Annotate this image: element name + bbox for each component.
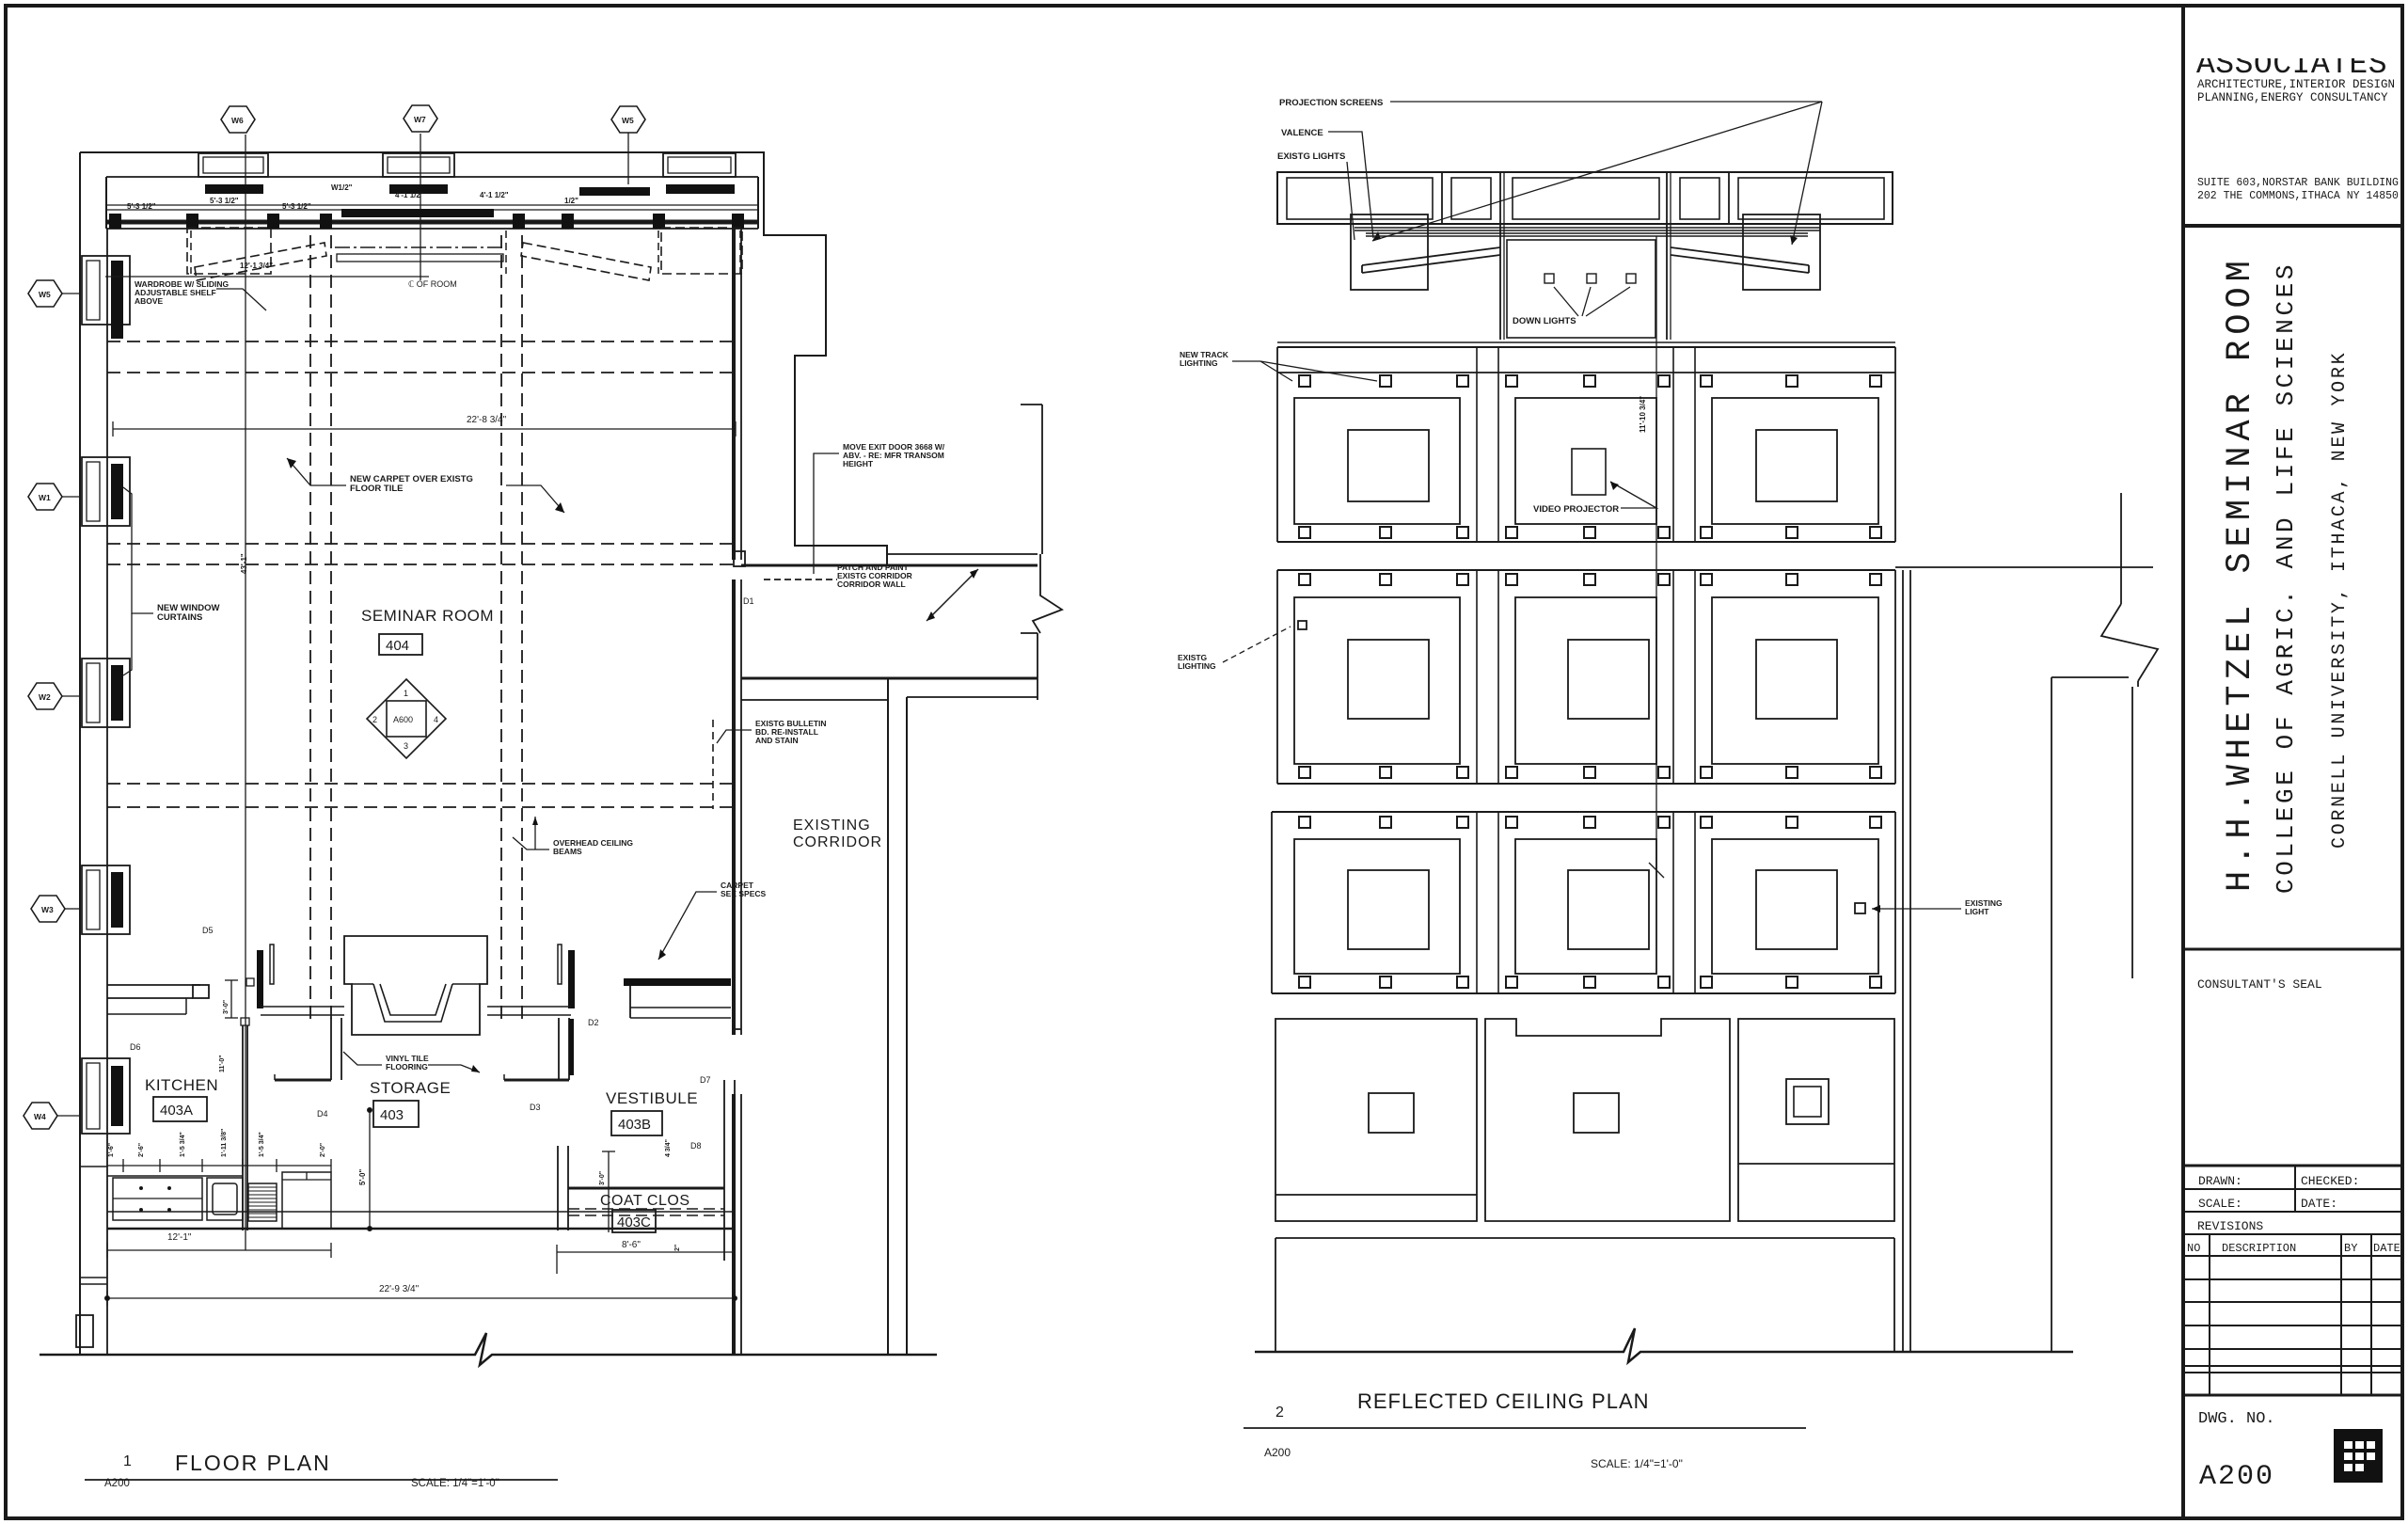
svg-text:VESTIBULE: VESTIBULE [606, 1089, 698, 1107]
svg-text:22'-9 3/4": 22'-9 3/4" [379, 1284, 420, 1294]
svg-text:D3: D3 [530, 1103, 541, 1112]
svg-text:DOWN LIGHTS: DOWN LIGHTS [1513, 316, 1576, 326]
svg-text:1'-5 3/4": 1'-5 3/4" [259, 1132, 265, 1157]
svg-text:CHECKED:: CHECKED: [2301, 1174, 2359, 1188]
svg-text:A200: A200 [2199, 1461, 2274, 1493]
svg-text:DRAWN:: DRAWN: [2198, 1174, 2242, 1188]
svg-text:A200: A200 [104, 1478, 130, 1489]
svg-text:2: 2 [1275, 1405, 1284, 1421]
svg-text:CORRIDOR WALL: CORRIDOR WALL [837, 579, 906, 589]
svg-text:A600: A600 [393, 715, 413, 724]
svg-text:HEIGHT: HEIGHT [843, 459, 874, 468]
svg-text:W5: W5 [39, 290, 51, 299]
svg-text:4: 4 [434, 715, 438, 724]
svg-text:2: 2 [372, 715, 377, 724]
svg-text:CONSULTANT'S SEAL: CONSULTANT'S SEAL [2197, 977, 2322, 992]
svg-text:D7: D7 [700, 1075, 711, 1085]
svg-text:ABOVE: ABOVE [135, 296, 164, 306]
svg-text:11'-0": 11'-0" [219, 1055, 226, 1072]
svg-text:1: 1 [404, 689, 408, 698]
svg-text:BY: BY [2344, 1242, 2357, 1255]
svg-text:5'-3 1/2": 5'-3 1/2" [127, 202, 156, 211]
svg-text:43'-1": 43'-1" [240, 553, 248, 574]
svg-text:1'-11 3/8": 1'-11 3/8" [221, 1129, 228, 1157]
svg-text:12'-1 3/4": 12'-1 3/4" [240, 262, 273, 270]
svg-text:D2: D2 [588, 1018, 599, 1027]
svg-text:AND STAIN: AND STAIN [755, 736, 799, 745]
svg-text:2": 2" [674, 1245, 681, 1251]
svg-text:CURTAINS: CURTAINS [157, 612, 202, 623]
svg-text:202 THE COMMONS,ITHACA NY 1485: 202 THE COMMONS,ITHACA NY 14850 [2197, 190, 2399, 202]
svg-text:DATE: DATE [2373, 1242, 2400, 1255]
svg-text:403B: 403B [618, 1117, 651, 1133]
svg-text:W3: W3 [41, 905, 54, 914]
svg-text:3: 3 [404, 741, 408, 751]
svg-text:LIGHT: LIGHT [1965, 907, 1989, 916]
svg-text:11'-10 3/4": 11'-10 3/4" [1639, 396, 1647, 433]
svg-text:REVISIONS: REVISIONS [2197, 1219, 2263, 1233]
svg-text:3'-0": 3'-0" [599, 1171, 606, 1185]
svg-text:5'-3 1/2": 5'-3 1/2" [282, 202, 311, 211]
svg-text:LIGHTING: LIGHTING [1180, 358, 1218, 368]
svg-text:D8: D8 [690, 1141, 702, 1151]
svg-text:ARCHITECTURE,INTERIOR DESIGN: ARCHITECTURE,INTERIOR DESIGN [2197, 78, 2395, 91]
svg-text:LIGHTING: LIGHTING [1178, 661, 1216, 671]
svg-text:FLOORING: FLOORING [386, 1062, 428, 1072]
svg-text:SCALE: 1/4"=1'-0": SCALE: 1/4"=1'-0" [411, 1478, 499, 1489]
svg-text:CORNELL UNIVERSITY, ITHACA,: CORNELL UNIVERSITY, ITHACA, NEW YORK [2329, 351, 2351, 849]
svg-text:BEAMS: BEAMS [553, 847, 582, 856]
svg-text:4 3/4": 4 3/4" [665, 1139, 672, 1157]
svg-text:PROJECTION SCREENS: PROJECTION SCREENS [1279, 98, 1383, 108]
svg-text:DATE:: DATE: [2301, 1197, 2337, 1211]
svg-text:DESCRIPTION: DESCRIPTION [2222, 1242, 2296, 1255]
svg-text:SUITE 603,NORSTAR BANK BUILDIN: SUITE 603,NORSTAR BANK BUILDING [2197, 177, 2399, 189]
svg-text:5'-3 1/2": 5'-3 1/2" [210, 197, 239, 205]
svg-text:CORRIDOR: CORRIDOR [793, 834, 882, 850]
svg-text:STORAGE: STORAGE [370, 1079, 451, 1097]
svg-text:1'-6": 1'-6" [108, 1143, 115, 1157]
svg-text:FLOOR PLAN: FLOOR PLAN [175, 1451, 331, 1475]
svg-text:1/2": 1/2" [564, 197, 578, 205]
svg-text:D6: D6 [130, 1042, 141, 1052]
svg-text:W2: W2 [39, 692, 51, 702]
svg-text:2'-0": 2'-0" [320, 1143, 326, 1157]
svg-text:SEMINAR ROOM: SEMINAR ROOM [361, 607, 494, 625]
svg-text:SCALE: 1/4"=1'-0": SCALE: 1/4"=1'-0" [1591, 1457, 1683, 1470]
svg-text:W4: W4 [34, 1112, 46, 1121]
svg-text:12'-1": 12'-1" [167, 1232, 192, 1243]
svg-text:VIDEO PROJECTOR: VIDEO PROJECTOR [1533, 504, 1619, 515]
svg-text:1'-5 3/4": 1'-5 3/4" [180, 1132, 186, 1157]
svg-text:EXISTING: EXISTING [793, 818, 871, 833]
svg-text:404: 404 [386, 638, 409, 654]
svg-text:A200: A200 [1264, 1446, 1291, 1459]
svg-text:FLOOR TILE: FLOOR TILE [350, 484, 403, 494]
svg-text:3'-0": 3'-0" [223, 1000, 230, 1014]
svg-text:W1/2": W1/2" [331, 183, 353, 192]
svg-text:REFLECTED CEILING PLAN: REFLECTED CEILING PLAN [1357, 1389, 1650, 1413]
svg-text:DWG. NO.: DWG. NO. [2198, 1410, 2275, 1428]
svg-text:COAT CLOS: COAT CLOS [600, 1193, 689, 1209]
svg-text:SCALE:: SCALE: [2198, 1197, 2242, 1211]
svg-text:W5: W5 [622, 116, 634, 125]
svg-text:D4: D4 [317, 1109, 328, 1119]
svg-text:D1: D1 [743, 596, 754, 606]
svg-text:SEE SPECS: SEE SPECS [721, 889, 767, 898]
svg-text:403: 403 [380, 1107, 404, 1123]
svg-text:H.H.WHETZEL SEMINAR ROOM: H.H.WHETZEL SEMINAR ROOM [2221, 255, 2260, 892]
svg-text:5'-0": 5'-0" [358, 1169, 367, 1185]
svg-text:PLANNING,ENERGY CONSULTANCY: PLANNING,ENERGY CONSULTANCY [2197, 91, 2388, 104]
svg-text:W6: W6 [231, 116, 244, 125]
svg-text:ℂ OF ROOM: ℂ OF ROOM [408, 279, 457, 289]
svg-text:22'-8 3/4": 22'-8 3/4" [467, 415, 507, 425]
svg-text:8'-6": 8'-6" [622, 1240, 641, 1250]
svg-text:VALENCE: VALENCE [1281, 128, 1323, 138]
svg-text:4'-1 1/2": 4'-1 1/2" [480, 191, 509, 199]
svg-text:2'-6": 2'-6" [138, 1143, 145, 1157]
svg-text:4'-1 1/2": 4'-1 1/2" [395, 191, 424, 199]
svg-text:W7: W7 [414, 115, 426, 124]
svg-text:COLLEGE OF AGRIC. AND LIFE SCI: COLLEGE OF AGRIC. AND LIFE SCIENCES [2272, 262, 2300, 894]
svg-text:W1: W1 [39, 493, 51, 502]
svg-text:KITCHEN: KITCHEN [145, 1076, 218, 1094]
svg-text:1: 1 [123, 1453, 132, 1469]
svg-text:D5: D5 [202, 926, 214, 935]
svg-text:403A: 403A [160, 1103, 193, 1119]
svg-text:EXISTG LIGHTS: EXISTG LIGHTS [1277, 151, 1345, 162]
svg-text:NO: NO [2187, 1242, 2200, 1255]
